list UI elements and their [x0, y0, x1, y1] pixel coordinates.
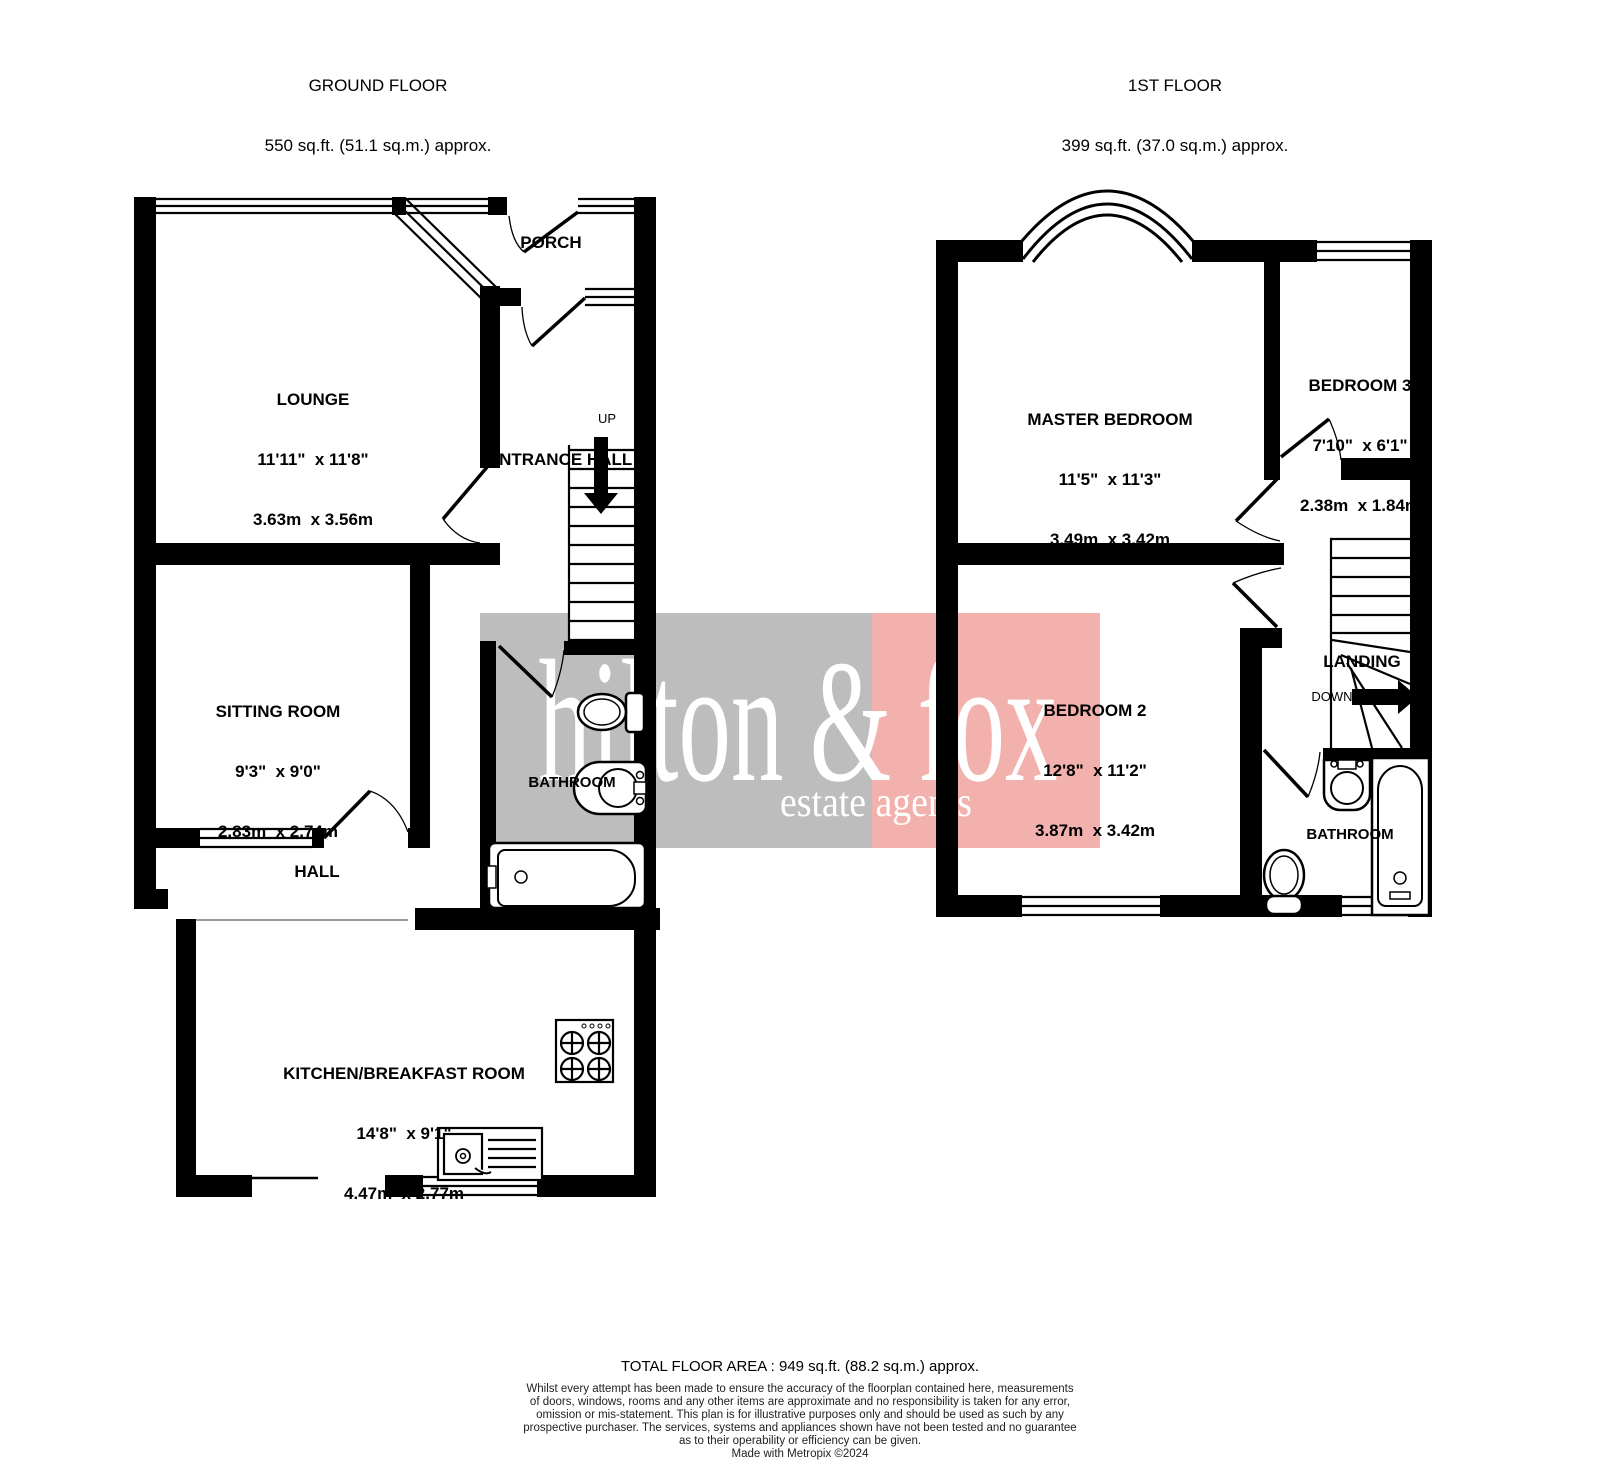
ground-floor-title: GROUND FLOOR 550 sq.ft. (51.1 sq.m.) app… [265, 36, 492, 196]
footer: TOTAL FLOOR AREA : 949 sq.ft. (88.2 sq.m… [0, 1358, 1600, 1461]
room-name: BEDROOM 2 [1035, 701, 1155, 721]
landing-label: LANDING [1323, 652, 1400, 672]
floorplan-page: hilton & fox estate agents [0, 0, 1600, 1464]
hall-label: HALL [294, 862, 339, 882]
room-dims-m: 3.87m x 3.42m [1035, 821, 1155, 841]
room-dims-ft: 9'3" x 9'0" [216, 762, 341, 782]
room-dims-ft: 7'10" x 6'1" [1300, 436, 1420, 456]
room-name: KITCHEN/BREAKFAST ROOM [283, 1064, 525, 1084]
floor-title-text: GROUND FLOOR [265, 76, 492, 96]
floor-area-text: 399 sq.ft. (37.0 sq.m.) approx. [1062, 136, 1289, 156]
room-name: SITTING ROOM [216, 702, 341, 722]
first-floor-title: 1ST FLOOR 399 sq.ft. (37.0 sq.m.) approx… [1062, 36, 1289, 196]
sitting-room-label: SITTING ROOM 9'3" x 9'0" 2.83m x 2.74m [216, 662, 341, 882]
room-dims-ft: 11'5" x 11'3" [1027, 470, 1192, 490]
labels-layer: GROUND FLOOR 550 sq.ft. (51.1 sq.m.) app… [0, 0, 1600, 1464]
room-name: LOUNGE [253, 390, 373, 410]
room-dims-ft: 11'11" x 11'8" [253, 450, 373, 470]
disclaimer-line: omission or mis-statement. This plan is … [0, 1409, 1600, 1422]
floor-area-text: 550 sq.ft. (51.1 sq.m.) approx. [265, 136, 492, 156]
up-label: UP [598, 411, 616, 426]
disclaimer-line: prospective purchaser. The services, sys… [0, 1422, 1600, 1435]
room-name: BEDROOM 3 [1300, 376, 1420, 396]
room-dims-m: 4.47m x 2.77m [283, 1184, 525, 1204]
disclaimer-line: of doors, windows, rooms and any other i… [0, 1396, 1600, 1409]
total-floor-area: TOTAL FLOOR AREA : 949 sq.ft. (88.2 sq.m… [0, 1358, 1600, 1376]
room-dims-ft: 12'8" x 11'2" [1035, 761, 1155, 781]
kitchen-label: KITCHEN/BREAKFAST ROOM 14'8" x 9'1" 4.47… [283, 1024, 525, 1244]
entrance-hall-label: ENTRANCE HALL [488, 450, 633, 470]
porch-label: PORCH [520, 233, 581, 253]
disclaimer-line: Whilst every attempt has been made to en… [0, 1383, 1600, 1396]
ff-bathroom-label: BATHROOM [1306, 825, 1393, 845]
master-bedroom-label: MASTER BEDROOM 11'5" x 11'3" 3.49m x 3.4… [1027, 370, 1192, 590]
gf-bathroom-label: BATHROOM [528, 773, 615, 793]
room-dims-m: 3.49m x 3.42m [1027, 530, 1192, 550]
room-dims-ft: 14'8" x 9'1" [283, 1124, 525, 1144]
room-dims-m: 2.83m x 2.74m [216, 822, 341, 842]
bedroom2-label: BEDROOM 2 12'8" x 11'2" 3.87m x 3.42m [1035, 661, 1155, 881]
lounge-label: LOUNGE 11'11" x 11'8" 3.63m x 3.56m [253, 350, 373, 570]
floor-title-text: 1ST FLOOR [1062, 76, 1289, 96]
metropix-credit: Made with Metropix ©2024 [0, 1448, 1600, 1461]
room-name: MASTER BEDROOM [1027, 410, 1192, 430]
down-label: DOWN [1311, 689, 1352, 704]
room-dims-m: 3.63m x 3.56m [253, 510, 373, 530]
room-dims-m: 2.38m x 1.84m [1300, 496, 1420, 516]
bedroom3-label: BEDROOM 3 7'10" x 6'1" 2.38m x 1.84m [1300, 336, 1420, 556]
disclaimer-line: as to their operability or efficiency ca… [0, 1435, 1600, 1448]
